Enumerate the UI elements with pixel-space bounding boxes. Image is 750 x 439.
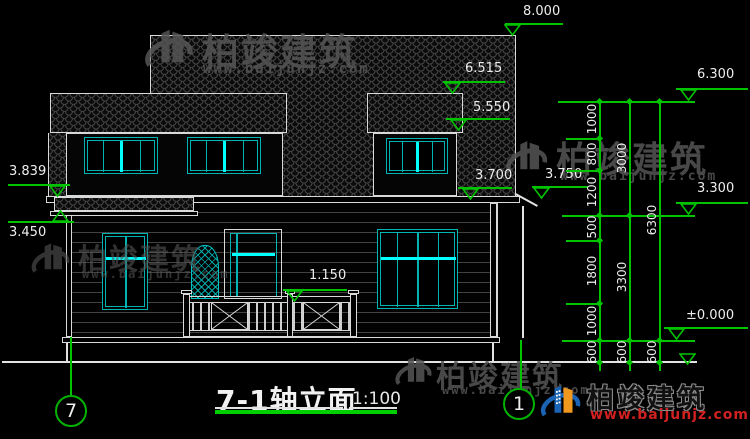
- dormer-window-3: [386, 138, 448, 174]
- elev-triangle: [680, 203, 697, 215]
- elev-triangle: [450, 119, 467, 131]
- foundation-line-left: [66, 343, 68, 362]
- window-mullion: [103, 141, 104, 172]
- ground-triangle: [679, 353, 696, 365]
- railing-post: [183, 294, 190, 337]
- cad-elevation-canvas: 柏竣建筑 www.baijunjz.com 柏竣建筑 www.baijunjz.…: [0, 0, 750, 439]
- window-mullion: [397, 233, 398, 307]
- elev-triangle: [533, 187, 550, 199]
- footer-logo-url: www.baijunjz.com: [590, 407, 749, 423]
- railing-x-panel: [211, 302, 248, 330]
- elev-triangle: [444, 82, 461, 94]
- ff-right-window: [377, 229, 458, 309]
- balusters: [340, 302, 350, 330]
- dim-label: 600: [584, 322, 600, 382]
- watermark-url: www.baijunjz.com: [203, 61, 370, 77]
- dormer-window-1: [84, 137, 158, 174]
- porch-door: [224, 229, 282, 299]
- window-mullion: [206, 141, 207, 172]
- left-lower-eave-fascia: [50, 211, 198, 216]
- elev-triangle: [462, 188, 479, 200]
- footer-logo-icon: [535, 376, 583, 424]
- gable-corner-line: [522, 206, 524, 338]
- porch-floor-slab: [62, 337, 500, 343]
- dim-tick: [626, 212, 633, 219]
- axis-bubble-7: 7: [55, 395, 87, 427]
- title-underline-green: [215, 410, 397, 414]
- dim-label: 3000: [614, 128, 630, 188]
- right-dormer-roof: [367, 93, 463, 133]
- dim-label: 600: [644, 322, 660, 382]
- elev-triangle: [49, 185, 66, 197]
- elev-right-top: 6.300: [697, 67, 734, 82]
- corner-trim-right: [490, 203, 497, 337]
- door-mullion-bright: [232, 253, 275, 256]
- dim-label: 3300: [614, 247, 630, 307]
- window-mullion-bright: [381, 257, 456, 260]
- scale-underline-white: [349, 407, 397, 409]
- axis-line-1: [520, 340, 522, 388]
- window-mullion-bright: [416, 142, 419, 172]
- dim-label: 6300: [644, 190, 660, 250]
- door-stile: [236, 234, 238, 296]
- dim-label: 600: [614, 322, 630, 382]
- window-mullion-bright: [120, 141, 123, 172]
- window-mullion-bright: [223, 141, 226, 172]
- railing-bottom-rail: [183, 330, 357, 337]
- dormer-window-2: [187, 137, 261, 174]
- drawing-scale: 1:100: [352, 389, 401, 409]
- elev-right-zero: ±0.000: [686, 308, 734, 323]
- window-mullion: [438, 233, 439, 307]
- railing-x-panel: [303, 302, 340, 330]
- left-dormer-roof: [50, 93, 287, 133]
- balusters: [248, 302, 287, 330]
- elev-left-eave-bottom: 3.450: [9, 225, 46, 240]
- elev-dormer-roof: 6.515: [465, 61, 502, 76]
- balusters: [192, 302, 211, 330]
- dim-tick: [626, 98, 633, 105]
- elev-left-eave-top: 3.839: [9, 164, 46, 179]
- watermark-url: www.baijunjz.com: [82, 267, 230, 281]
- elev-right-mid: 3.300: [697, 181, 734, 196]
- elev-triangle: [52, 210, 69, 222]
- window-mullion: [402, 142, 403, 172]
- axis-line-7: [70, 337, 72, 395]
- elev-ridge: 8.000: [523, 4, 560, 19]
- railing-post: [350, 294, 357, 337]
- dim-tick: [656, 98, 663, 105]
- window-mullion: [140, 141, 141, 172]
- window-mullion: [417, 233, 419, 307]
- elev-main-eave: 3.700: [475, 168, 512, 183]
- left-lower-eave: [54, 197, 194, 211]
- window-mullion: [243, 141, 244, 172]
- elev-triangle: [668, 328, 685, 340]
- elev-triangle: [504, 24, 521, 36]
- elev-dormer-eave: 5.550: [473, 100, 510, 115]
- window-mullion: [432, 142, 433, 172]
- elev-triangle: [680, 89, 697, 101]
- title-underline-white: [215, 407, 343, 409]
- axis-bubble-1: 1: [503, 388, 535, 420]
- balusters: [293, 302, 303, 330]
- elev-porch-rail: 1.150: [309, 268, 346, 283]
- watermark-logo-icon: [138, 16, 196, 78]
- elev-triangle: [286, 290, 303, 302]
